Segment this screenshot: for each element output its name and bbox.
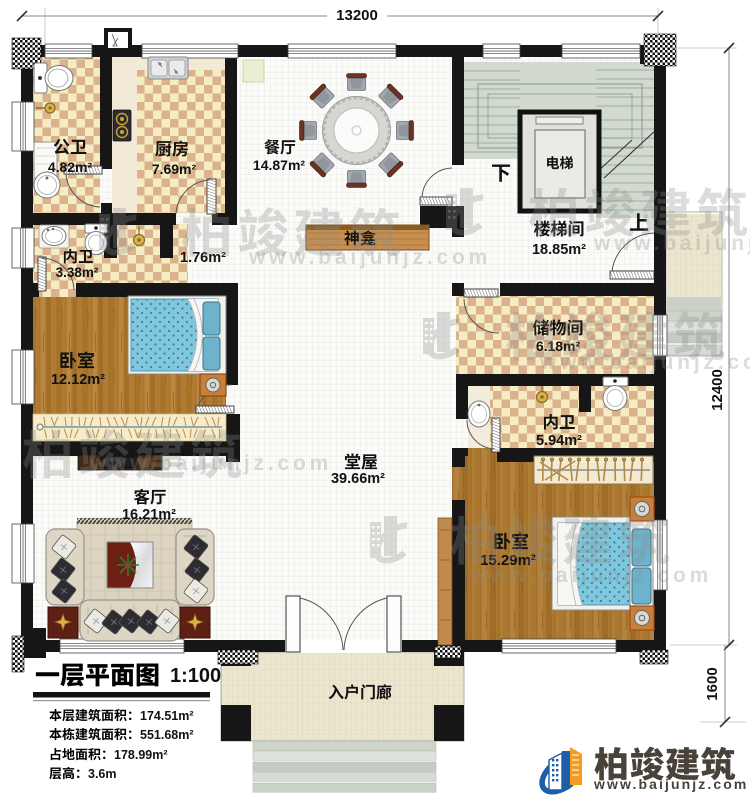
svg-text:39.66m²: 39.66m² — [331, 471, 385, 487]
svg-text:174.51m²: 174.51m² — [140, 709, 194, 723]
svg-text:14.87m²: 14.87m² — [253, 157, 305, 173]
svg-text:www.baijunjz.com: www.baijunjz.com — [248, 246, 491, 269]
svg-text:www.baijunjz.com: www.baijunjz.com — [593, 232, 750, 255]
svg-text:www.baijunjz.com: www.baijunjz.com — [593, 776, 748, 792]
svg-text:18.85m²: 18.85m² — [532, 242, 586, 258]
svg-text:3.6m: 3.6m — [88, 767, 117, 781]
svg-text:1600: 1600 — [704, 667, 721, 700]
svg-text:13200: 13200 — [336, 7, 378, 24]
svg-text:178.99m²: 178.99m² — [114, 748, 168, 762]
svg-text:3.38m²: 3.38m² — [56, 265, 99, 280]
svg-text:551.68m²: 551.68m² — [140, 728, 194, 742]
svg-text:www.baijunjz.com: www.baijunjz.com — [89, 452, 332, 475]
svg-text:16.21m²: 16.21m² — [122, 507, 176, 523]
svg-text:4.82m²: 4.82m² — [48, 159, 93, 175]
svg-text:www.baijunjz.com: www.baijunjz.com — [469, 564, 712, 587]
svg-text:12400: 12400 — [709, 369, 726, 411]
svg-text:12.12m²: 12.12m² — [51, 372, 105, 388]
svg-text:5.94m²: 5.94m² — [536, 433, 582, 449]
svg-text:1:100: 1:100 — [170, 665, 221, 687]
svg-text:7.69m²: 7.69m² — [152, 161, 197, 177]
